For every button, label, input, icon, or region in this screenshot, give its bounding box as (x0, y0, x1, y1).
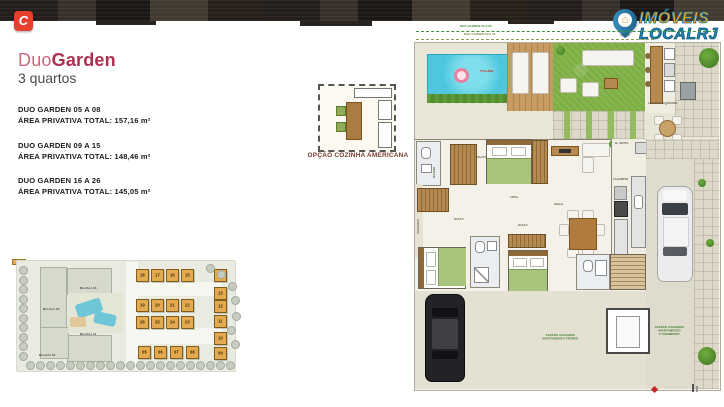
site-tree (196, 361, 205, 370)
sofa-chaise (582, 157, 594, 173)
site-unit-22: 22 (181, 299, 194, 312)
pillow (530, 258, 544, 267)
outdoor-armchair (582, 82, 599, 97)
lounge-chair (532, 52, 549, 94)
page-title: DuoGarden (18, 50, 116, 71)
fridge (614, 186, 627, 200)
site-tree (76, 361, 85, 370)
inset-island-counter (346, 102, 362, 140)
title-part-duo: Duo (18, 50, 52, 70)
inset-counter-top (354, 88, 392, 98)
site-unit-23: 23 (181, 316, 194, 329)
tree (698, 347, 716, 365)
page-subtitle: 3 quartos (18, 70, 76, 86)
site-unit-20: 20 (151, 299, 164, 312)
unit-spec-1: DUO GARDEN 05 A 08 ÁREA PRIVATIVA TOTAL:… (18, 104, 150, 126)
kitchen-counter-2 (614, 219, 628, 259)
block-02-label: BLOCO 02 (39, 354, 56, 357)
site-unit-11: 11 (214, 315, 227, 328)
suite-3-label: SUITE (518, 224, 528, 228)
circulation-label: CIRC. (510, 196, 519, 200)
unit-name: DUO GARDEN 05 A 08 (18, 104, 150, 115)
blanket (438, 248, 466, 286)
site-tree (86, 361, 95, 370)
plant (556, 46, 565, 55)
white-car (657, 186, 693, 282)
site-tree (106, 361, 115, 370)
black-car (425, 294, 465, 382)
site-unit-13: 13 (214, 287, 227, 300)
brochure-page: C ⌂ IMÓVEIS LOCALRJ DuoGarden 3 quartos … (0, 0, 724, 407)
site-unit-06: 06 (154, 346, 167, 359)
sink (421, 164, 432, 173)
sink (595, 260, 607, 276)
dining-table (569, 218, 597, 250)
site-unit-12: 12 (214, 300, 227, 313)
unit-area: ÁREA PRIVATIVA TOTAL: 145,05 m² (18, 186, 150, 197)
site-tree (19, 333, 28, 342)
site-sand-patch (70, 317, 86, 327)
pool-float (454, 68, 469, 83)
site-tree (56, 361, 65, 370)
bathroom-1 (416, 141, 441, 186)
outdoor-sofa (582, 50, 634, 66)
bathroom-1-label: BANHO (433, 167, 436, 178)
site-tree (166, 361, 175, 370)
site-tree (96, 361, 105, 370)
house-icon: ⌂ (618, 13, 632, 27)
site-unit-09: 09 (214, 347, 227, 360)
elevator-cab (616, 316, 640, 348)
site-tree (227, 326, 236, 335)
site-tree (19, 352, 28, 361)
bar-stool (645, 81, 651, 87)
site-unit-17: 17 (151, 269, 164, 282)
block-04-label: BLOCO 04 (80, 287, 97, 290)
scale-mark (692, 384, 694, 392)
hedge (427, 94, 507, 103)
inset-fridge (378, 100, 392, 120)
headboard (487, 140, 531, 145)
block-01-building (67, 335, 112, 362)
wood-edge-fragment (508, 21, 554, 24)
dining-chair (559, 224, 569, 236)
barbecue-grill (680, 82, 696, 100)
garage-access-ground: ACESSO GARAGEM APARTAMENTO TÉRREO (542, 334, 578, 341)
site-tree (216, 361, 225, 370)
pool: PISCINA (427, 54, 509, 96)
pillow (426, 252, 436, 267)
site-unit-16: 16 (166, 269, 179, 282)
unit-name: DUO GARDEN 09 A 15 (18, 140, 150, 151)
unit-spec-3: DUO GARDEN 16 A 26 ÁREA PRIVATIVA TOTAL:… (18, 175, 150, 197)
site-unit-25: 25 (151, 316, 164, 329)
patio-table (659, 120, 676, 137)
pillow (513, 258, 527, 267)
terrace-lawn (553, 43, 645, 111)
site-unit-05: 05 (138, 346, 151, 359)
headboard (509, 251, 547, 256)
wood-edge-fragment (300, 21, 372, 26)
bar-counter (650, 46, 663, 104)
site-tree (176, 361, 185, 370)
site-tree (19, 304, 28, 313)
site-tree (206, 264, 215, 273)
pillow (426, 270, 436, 285)
kitchen-zone (611, 139, 646, 272)
site-road (138, 328, 222, 344)
site-unit-10: 10 (214, 332, 227, 345)
grass-joint (608, 111, 614, 139)
site-tree (217, 270, 226, 279)
site-unit-21: 21 (166, 299, 179, 312)
site-tree (156, 361, 165, 370)
pillow (511, 147, 526, 156)
inset-caption: OPÇÃO COZINHA AMERICANA (306, 152, 410, 159)
plant (706, 239, 714, 247)
blanket (487, 158, 531, 184)
site-tree (19, 295, 28, 304)
floor-plan: DUO GARDEN 05 A 08 DUO GARDEN 09 A 15 PI… (414, 26, 724, 395)
site-road (138, 282, 222, 296)
inset-stool (336, 106, 346, 116)
site-tree (146, 361, 155, 370)
grass-joint (586, 111, 592, 139)
unit-area: ÁREA PRIVATIVA TOTAL: 148,46 m² (18, 151, 150, 162)
site-central-leisure (68, 293, 123, 333)
bar-sink (664, 48, 675, 60)
grill-appliance (664, 63, 675, 77)
car-rear-window (432, 351, 458, 359)
pool-label: PISCINA (480, 70, 493, 74)
site-tree (206, 361, 215, 370)
site-map: BLOCO 03 BLOCO 04 BLOCO 01 BLOCO 02 1817… (16, 260, 236, 372)
car-windshield (662, 203, 688, 215)
scale-mark (696, 386, 698, 392)
headboard (419, 248, 424, 288)
site-tree (136, 361, 145, 370)
block-03-label: BLOCO 03 (43, 308, 60, 311)
suite-2-label: SUITE (454, 218, 464, 222)
variant-annotation-1: DUO GARDEN 05 A 08 (460, 25, 492, 28)
car-rear-window (663, 247, 687, 256)
lounge-chair (512, 52, 529, 94)
sink (487, 241, 497, 251)
site-unit-07: 07 (170, 346, 183, 359)
closet-3 (508, 234, 546, 248)
barbecue-label: CHURRASQUEIRA (648, 102, 677, 106)
kitchen-label: COZINHA (613, 178, 628, 182)
variant-annotation-2: DUO GARDEN 09 A 15 (464, 33, 496, 36)
block-03-building (40, 267, 67, 329)
site-tree (186, 361, 195, 370)
varanda-label: VARANDA (417, 219, 420, 234)
site-tree (232, 312, 241, 321)
tree (699, 48, 719, 68)
unit-spec-2: DUO GARDEN 09 A 15 ÁREA PRIVATIVA TOTAL:… (18, 140, 150, 162)
car-roof (432, 319, 458, 349)
wood-deck (507, 43, 553, 111)
shower (474, 267, 489, 283)
wardrobe-1 (532, 140, 548, 184)
wood-edge-fragment (96, 21, 156, 25)
site-tree (19, 276, 28, 285)
site-tree (36, 361, 45, 370)
grass-joint (630, 111, 636, 139)
pillow (492, 147, 507, 156)
site-tree (226, 361, 235, 370)
plant (698, 179, 706, 187)
site-tree (126, 361, 135, 370)
bar-stool (645, 53, 651, 59)
closet-2 (417, 188, 449, 212)
site-tree (19, 323, 28, 332)
car-roof (663, 217, 689, 247)
closet-1 (450, 144, 477, 185)
stairs (610, 254, 646, 290)
grass-joint (564, 111, 570, 139)
bathroom-2 (470, 236, 500, 288)
side-paver-path (694, 159, 719, 389)
lavatory (576, 254, 610, 290)
sofa (582, 143, 610, 157)
variant-annotation-line-2 (416, 39, 654, 40)
kitchen-sink (634, 195, 643, 209)
builder-logo: C (14, 11, 33, 31)
service-area-label: A. SERV. (615, 142, 629, 146)
unit-name: DUO GARDEN 16 A 26 (18, 175, 150, 186)
site-tree (46, 361, 55, 370)
site-unit-18: 18 (136, 269, 149, 282)
bed-suite-1 (486, 139, 532, 184)
toilet (583, 260, 593, 272)
site-tree (26, 361, 35, 370)
unit-area: ÁREA PRIVATIVA TOTAL: 157,16 m² (18, 115, 150, 126)
site-unit-19: 19 (136, 299, 149, 312)
block-04-building (67, 268, 112, 295)
bed-suite-2 (418, 247, 466, 289)
car-windshield (432, 308, 458, 317)
site-pool-shape (93, 311, 117, 327)
toilet (421, 147, 431, 159)
bar-stool (645, 67, 651, 73)
tv-cabinet (551, 146, 579, 156)
site-tree (19, 314, 28, 323)
blanket (509, 269, 547, 292)
elevator-shaft (606, 308, 650, 354)
site-tree (231, 296, 240, 305)
living-label: SALA (554, 203, 563, 207)
coffee-table (604, 78, 618, 89)
toilet (475, 241, 485, 253)
garage-access-upper: ACESSO GARAGEM APARTAMENTO 2º PAVIMENTO (655, 326, 684, 336)
driveway-paver-band (646, 139, 719, 159)
title-part-garden: Garden (52, 50, 116, 70)
line: 2º PAVIMENTO (655, 333, 684, 336)
site-unit-08: 08 (186, 346, 199, 359)
bar-cabinet (664, 80, 675, 92)
block-01-label: BLOCO 01 (80, 333, 97, 336)
site-tree (66, 361, 75, 370)
site-tree (228, 282, 237, 291)
site-tree (19, 285, 28, 294)
car-hood (663, 190, 687, 201)
site-tree (19, 266, 28, 275)
paver-walkway (553, 111, 645, 139)
site-tree (231, 340, 240, 349)
line: APARTAMENTO TÉRREO (542, 337, 578, 340)
kitchen-counter (631, 176, 646, 248)
site-tree (116, 361, 125, 370)
outdoor-armchair (560, 78, 577, 93)
site-unit-15: 15 (181, 269, 194, 282)
site-unit-24: 24 (166, 316, 179, 329)
variant-annotation-line-1 (416, 31, 716, 32)
site-unit-26: 26 (136, 316, 149, 329)
stove (614, 201, 628, 217)
tv (559, 149, 571, 153)
bed-suite-3 (508, 250, 548, 292)
site-plan: BLOCO 03 BLOCO 04 BLOCO 01 BLOCO 02 1817… (10, 256, 242, 380)
inset-cabinet (378, 122, 392, 148)
site-tree (19, 342, 28, 351)
inset-stool (336, 122, 346, 132)
